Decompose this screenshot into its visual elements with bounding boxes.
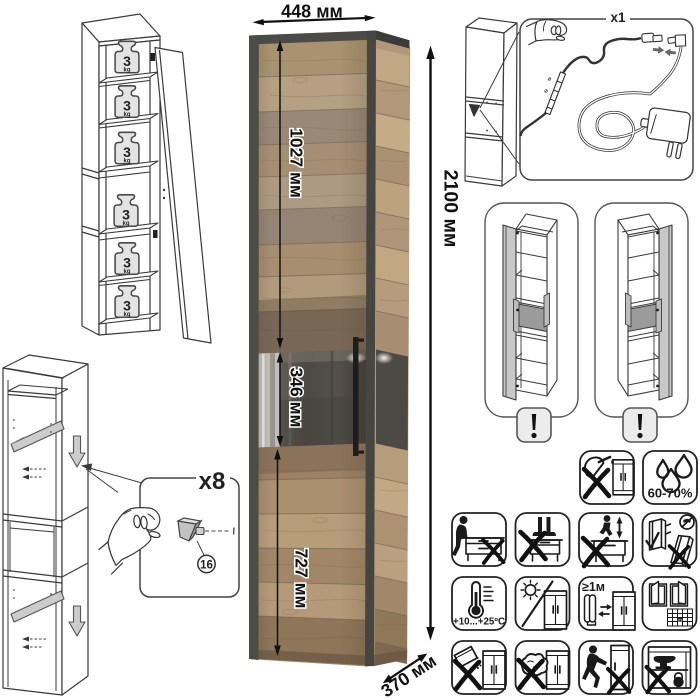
svg-text:60-70%: 60-70% [648, 486, 693, 501]
svg-text:+10...+25ºC: +10...+25ºC [453, 617, 505, 628]
svg-text:2100 мм: 2100 мм [440, 170, 462, 248]
svg-text:21: 21 [678, 617, 683, 622]
svg-text:16: 16 [200, 560, 213, 572]
svg-text:≥1м: ≥1м [582, 580, 605, 594]
svg-text:x8: x8 [199, 468, 226, 495]
svg-text:x1: x1 [610, 10, 626, 25]
svg-text:346 мм: 346 мм [287, 368, 307, 428]
svg-text:1027 мм: 1027 мм [287, 128, 307, 198]
svg-text:727 мм: 727 мм [292, 549, 312, 609]
